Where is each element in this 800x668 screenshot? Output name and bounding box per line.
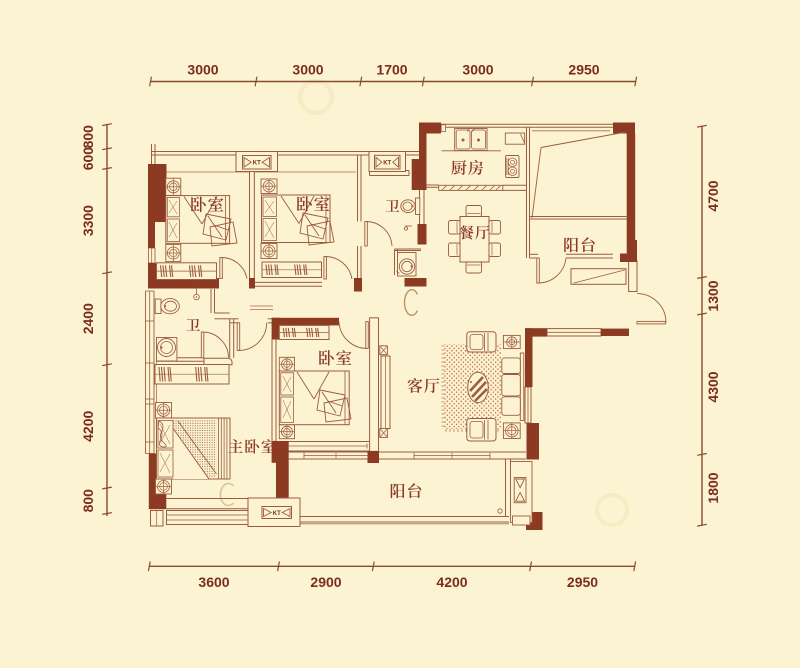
svg-text:600: 600 [80, 147, 96, 171]
svg-text:2900: 2900 [310, 574, 341, 590]
svg-text:2950: 2950 [568, 62, 599, 78]
svg-text:4200: 4200 [80, 411, 96, 442]
svg-text:3000: 3000 [292, 62, 323, 78]
svg-text:800: 800 [80, 489, 96, 513]
svg-text:1800: 1800 [705, 472, 721, 503]
svg-text:2400: 2400 [80, 303, 96, 334]
svg-text:3000: 3000 [187, 62, 218, 78]
svg-text:3300: 3300 [80, 205, 96, 236]
svg-text:4300: 4300 [705, 371, 721, 402]
svg-text:2950: 2950 [567, 574, 598, 590]
svg-text:4700: 4700 [705, 180, 721, 211]
svg-text:3600: 3600 [198, 574, 229, 590]
svg-text:KT: KT [273, 511, 281, 517]
svg-text:800: 800 [80, 125, 96, 149]
svg-text:KT: KT [253, 161, 261, 167]
svg-text:4200: 4200 [436, 574, 467, 590]
svg-text:KT: KT [383, 161, 391, 167]
svg-text:3000: 3000 [462, 62, 493, 78]
svg-text:1700: 1700 [376, 62, 407, 78]
svg-text:1300: 1300 [705, 280, 721, 311]
